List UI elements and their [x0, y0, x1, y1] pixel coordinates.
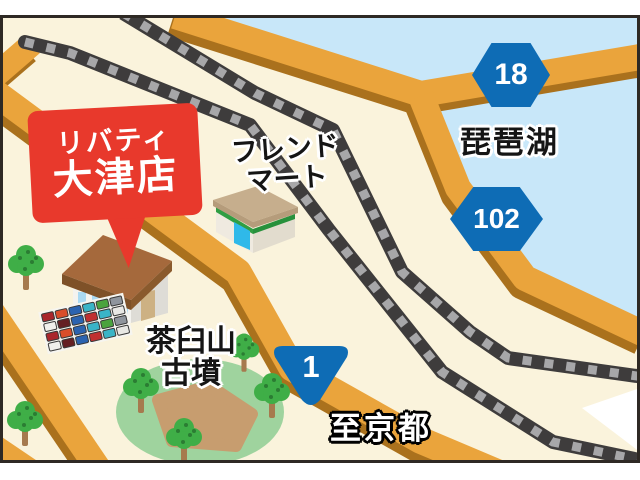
label-kofun: 茶臼山 古墳 [141, 326, 241, 390]
label-kofun-line1: 茶臼山 [141, 326, 241, 358]
parked-car [102, 328, 117, 340]
label-friendmart: フレンド マート [218, 129, 354, 198]
top-margin [0, 0, 640, 15]
route-number: 102 [473, 203, 520, 235]
parked-car [75, 334, 90, 346]
route-shield-1: 1 [271, 344, 351, 406]
map-screenshot: リバティ 大津店 フレンド マート 琵琶湖 茶臼山 古墳 至京都 18 102 … [0, 0, 640, 480]
parked-car [88, 331, 103, 343]
label-kofun-line2: 古墳 [141, 358, 241, 390]
parked-car [47, 340, 62, 352]
label-lake-biwa: 琵琶湖 [460, 117, 559, 162]
parked-car [61, 337, 76, 349]
parked-car [116, 324, 131, 336]
route-number: 18 [494, 58, 527, 92]
store-name-bubble: リバティ 大津店 [27, 103, 203, 224]
route-number: 1 [271, 349, 351, 385]
label-to-kyoto: 至京都 [330, 403, 432, 448]
bottom-margin [0, 463, 640, 480]
store-name-line2: 大津店 [52, 153, 180, 204]
